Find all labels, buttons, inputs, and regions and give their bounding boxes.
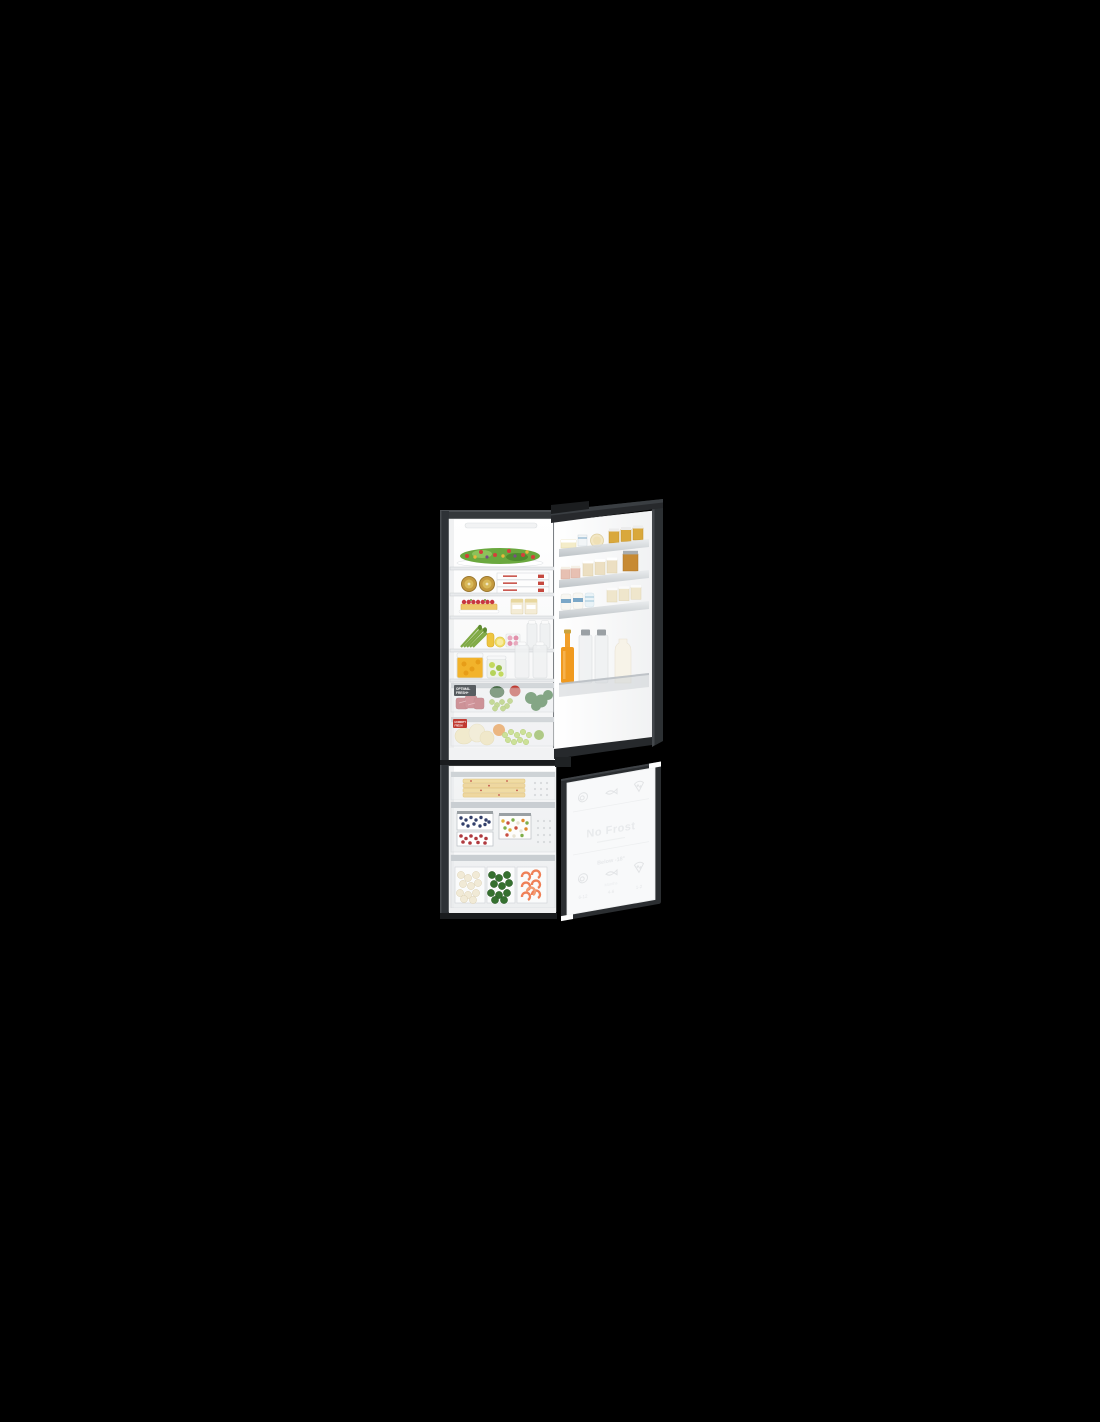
product-image: OPTIMAL FRESH+: [208, 437, 892, 983]
juice-bottle-neck: [565, 633, 570, 649]
shelf-salad: [457, 548, 543, 567]
fridge-base-liner: [449, 748, 556, 760]
ceiling-light: [465, 523, 537, 528]
optimal-fresh-label-line2: FRESH+: [456, 691, 469, 695]
freezer-drawer-bottom: [451, 855, 555, 908]
cabinet-divider: [440, 760, 557, 765]
glass-shelf: [450, 616, 556, 619]
water-bottle: [579, 635, 592, 683]
pizza-boxes: [497, 573, 549, 594]
glass-shelf: [450, 567, 556, 570]
freezer-base: [440, 913, 557, 919]
fridge-door-open: [551, 499, 663, 759]
middle-hinge: [555, 757, 571, 767]
glass-shelf: [450, 593, 556, 596]
freezer-drawer-top: [451, 772, 555, 800]
water-bottle: [595, 635, 608, 683]
corn: [487, 633, 494, 647]
humidity-fresh-label-line2: FRESH: [455, 724, 463, 727]
freezer-base-liner: [449, 908, 556, 913]
freezer-door-closed: No Frost Below -18° Months 6-12 4-6 1-2: [561, 762, 661, 922]
humidity-fresh-drawer: HUMIDITY FRESH: [451, 717, 555, 746]
freezer-drawer-middle: [451, 802, 555, 852]
fridge-freezer-illustration: OPTIMAL FRESH+: [437, 495, 665, 928]
juice-bottle: [561, 647, 574, 683]
screenshot-canvas: OPTIMAL FRESH+: [0, 0, 1100, 1422]
glass-shelf: [450, 679, 556, 682]
optimal-fresh-drawer: OPTIMAL FRESH+: [451, 683, 555, 712]
